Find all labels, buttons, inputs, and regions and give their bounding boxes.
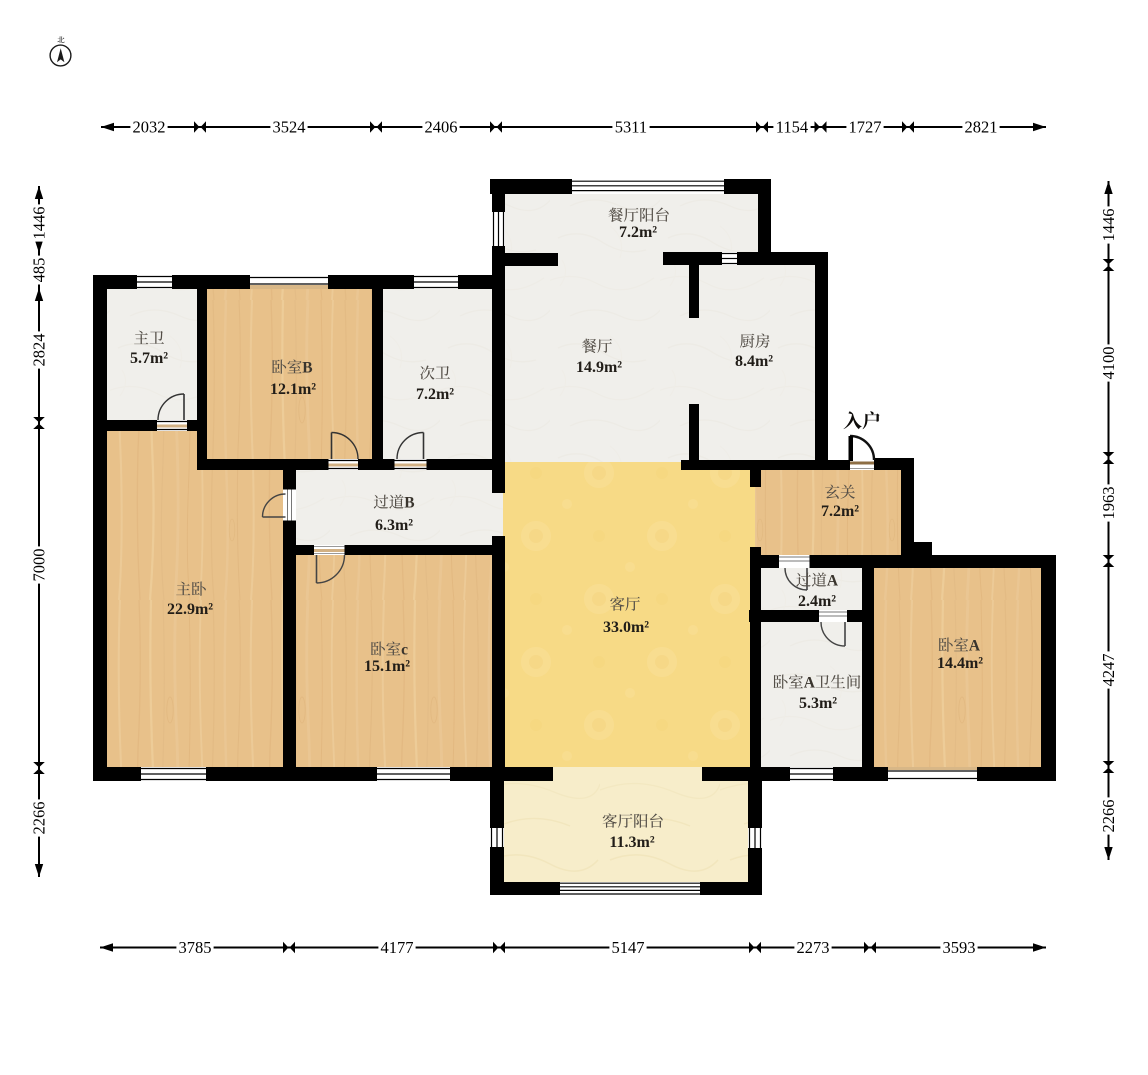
svg-text:14.9m²: 14.9m² — [576, 359, 622, 376]
svg-text:14.4m²: 14.4m² — [937, 655, 983, 672]
svg-text:2824: 2824 — [30, 334, 49, 367]
svg-text:8.4m²: 8.4m² — [735, 353, 773, 370]
svg-text:22.9m²: 22.9m² — [167, 601, 213, 618]
svg-text:3524: 3524 — [273, 118, 306, 137]
svg-text:B: B — [404, 495, 414, 512]
svg-text:1154: 1154 — [776, 118, 808, 137]
svg-text:5147: 5147 — [612, 938, 645, 957]
svg-text:2266: 2266 — [1099, 800, 1118, 833]
svg-text:A: A — [827, 573, 839, 590]
svg-text:15.1m²: 15.1m² — [364, 658, 410, 675]
svg-text:A: A — [969, 638, 981, 655]
svg-text:1446: 1446 — [1099, 209, 1118, 242]
svg-text:12.1m²: 12.1m² — [270, 381, 316, 398]
svg-text:5311: 5311 — [615, 118, 647, 137]
svg-text:5.3m²: 5.3m² — [799, 695, 837, 712]
svg-text:4177: 4177 — [381, 938, 414, 957]
svg-text:2273: 2273 — [797, 938, 830, 957]
svg-text:1446: 1446 — [30, 207, 49, 240]
svg-text:1963: 1963 — [1099, 487, 1118, 520]
svg-text:33.0m²: 33.0m² — [603, 619, 649, 636]
svg-text:A: A — [804, 675, 816, 692]
svg-text:B: B — [302, 360, 312, 377]
svg-text:7000: 7000 — [30, 549, 49, 582]
svg-text:3785: 3785 — [179, 938, 212, 957]
svg-text:7.2m²: 7.2m² — [821, 503, 859, 520]
svg-text:11.3m²: 11.3m² — [609, 834, 654, 851]
svg-text:7.2m²: 7.2m² — [416, 386, 454, 403]
svg-text:2406: 2406 — [425, 118, 458, 137]
svg-text:6.3m²: 6.3m² — [375, 517, 413, 534]
svg-text:2032: 2032 — [133, 118, 166, 137]
svg-text:5.7m²: 5.7m² — [130, 350, 168, 367]
svg-text:3593: 3593 — [943, 938, 976, 957]
svg-text:2821: 2821 — [965, 118, 998, 137]
svg-text:2.4m²: 2.4m² — [798, 593, 836, 610]
svg-text:7.2m²: 7.2m² — [619, 224, 657, 241]
svg-text:c: c — [401, 642, 408, 659]
svg-text:4100: 4100 — [1099, 347, 1118, 380]
svg-text:1727: 1727 — [849, 118, 882, 137]
svg-text:485: 485 — [30, 258, 49, 283]
svg-text:4247: 4247 — [1099, 654, 1118, 687]
svg-text:2266: 2266 — [30, 802, 49, 835]
